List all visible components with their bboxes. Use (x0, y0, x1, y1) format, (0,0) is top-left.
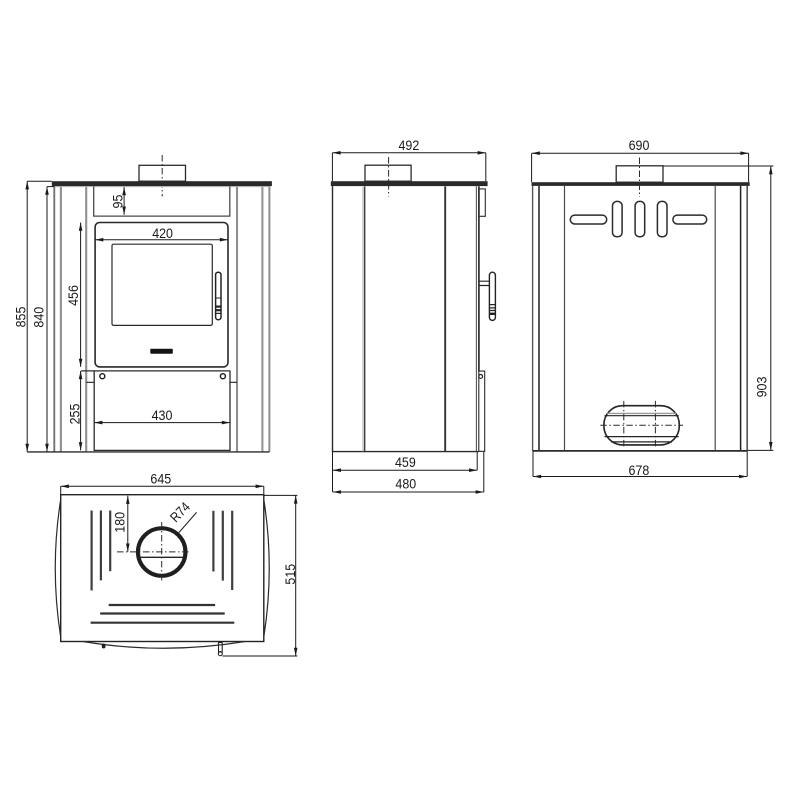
svg-text:95: 95 (111, 194, 126, 208)
svg-text:430: 430 (152, 408, 173, 423)
svg-text:456: 456 (66, 285, 81, 306)
svg-text:515: 515 (283, 564, 298, 585)
svg-text:840: 840 (32, 307, 47, 328)
svg-text:480: 480 (395, 477, 416, 492)
svg-text:420: 420 (152, 226, 173, 241)
svg-text:459: 459 (395, 455, 416, 470)
svg-text:180: 180 (113, 512, 128, 533)
svg-text:255: 255 (68, 403, 83, 424)
svg-text:855: 855 (14, 306, 29, 327)
svg-text:678: 678 (629, 463, 650, 478)
svg-text:690: 690 (629, 138, 650, 153)
svg-text:492: 492 (399, 138, 420, 153)
svg-text:645: 645 (150, 471, 171, 486)
svg-text:903: 903 (755, 376, 770, 397)
